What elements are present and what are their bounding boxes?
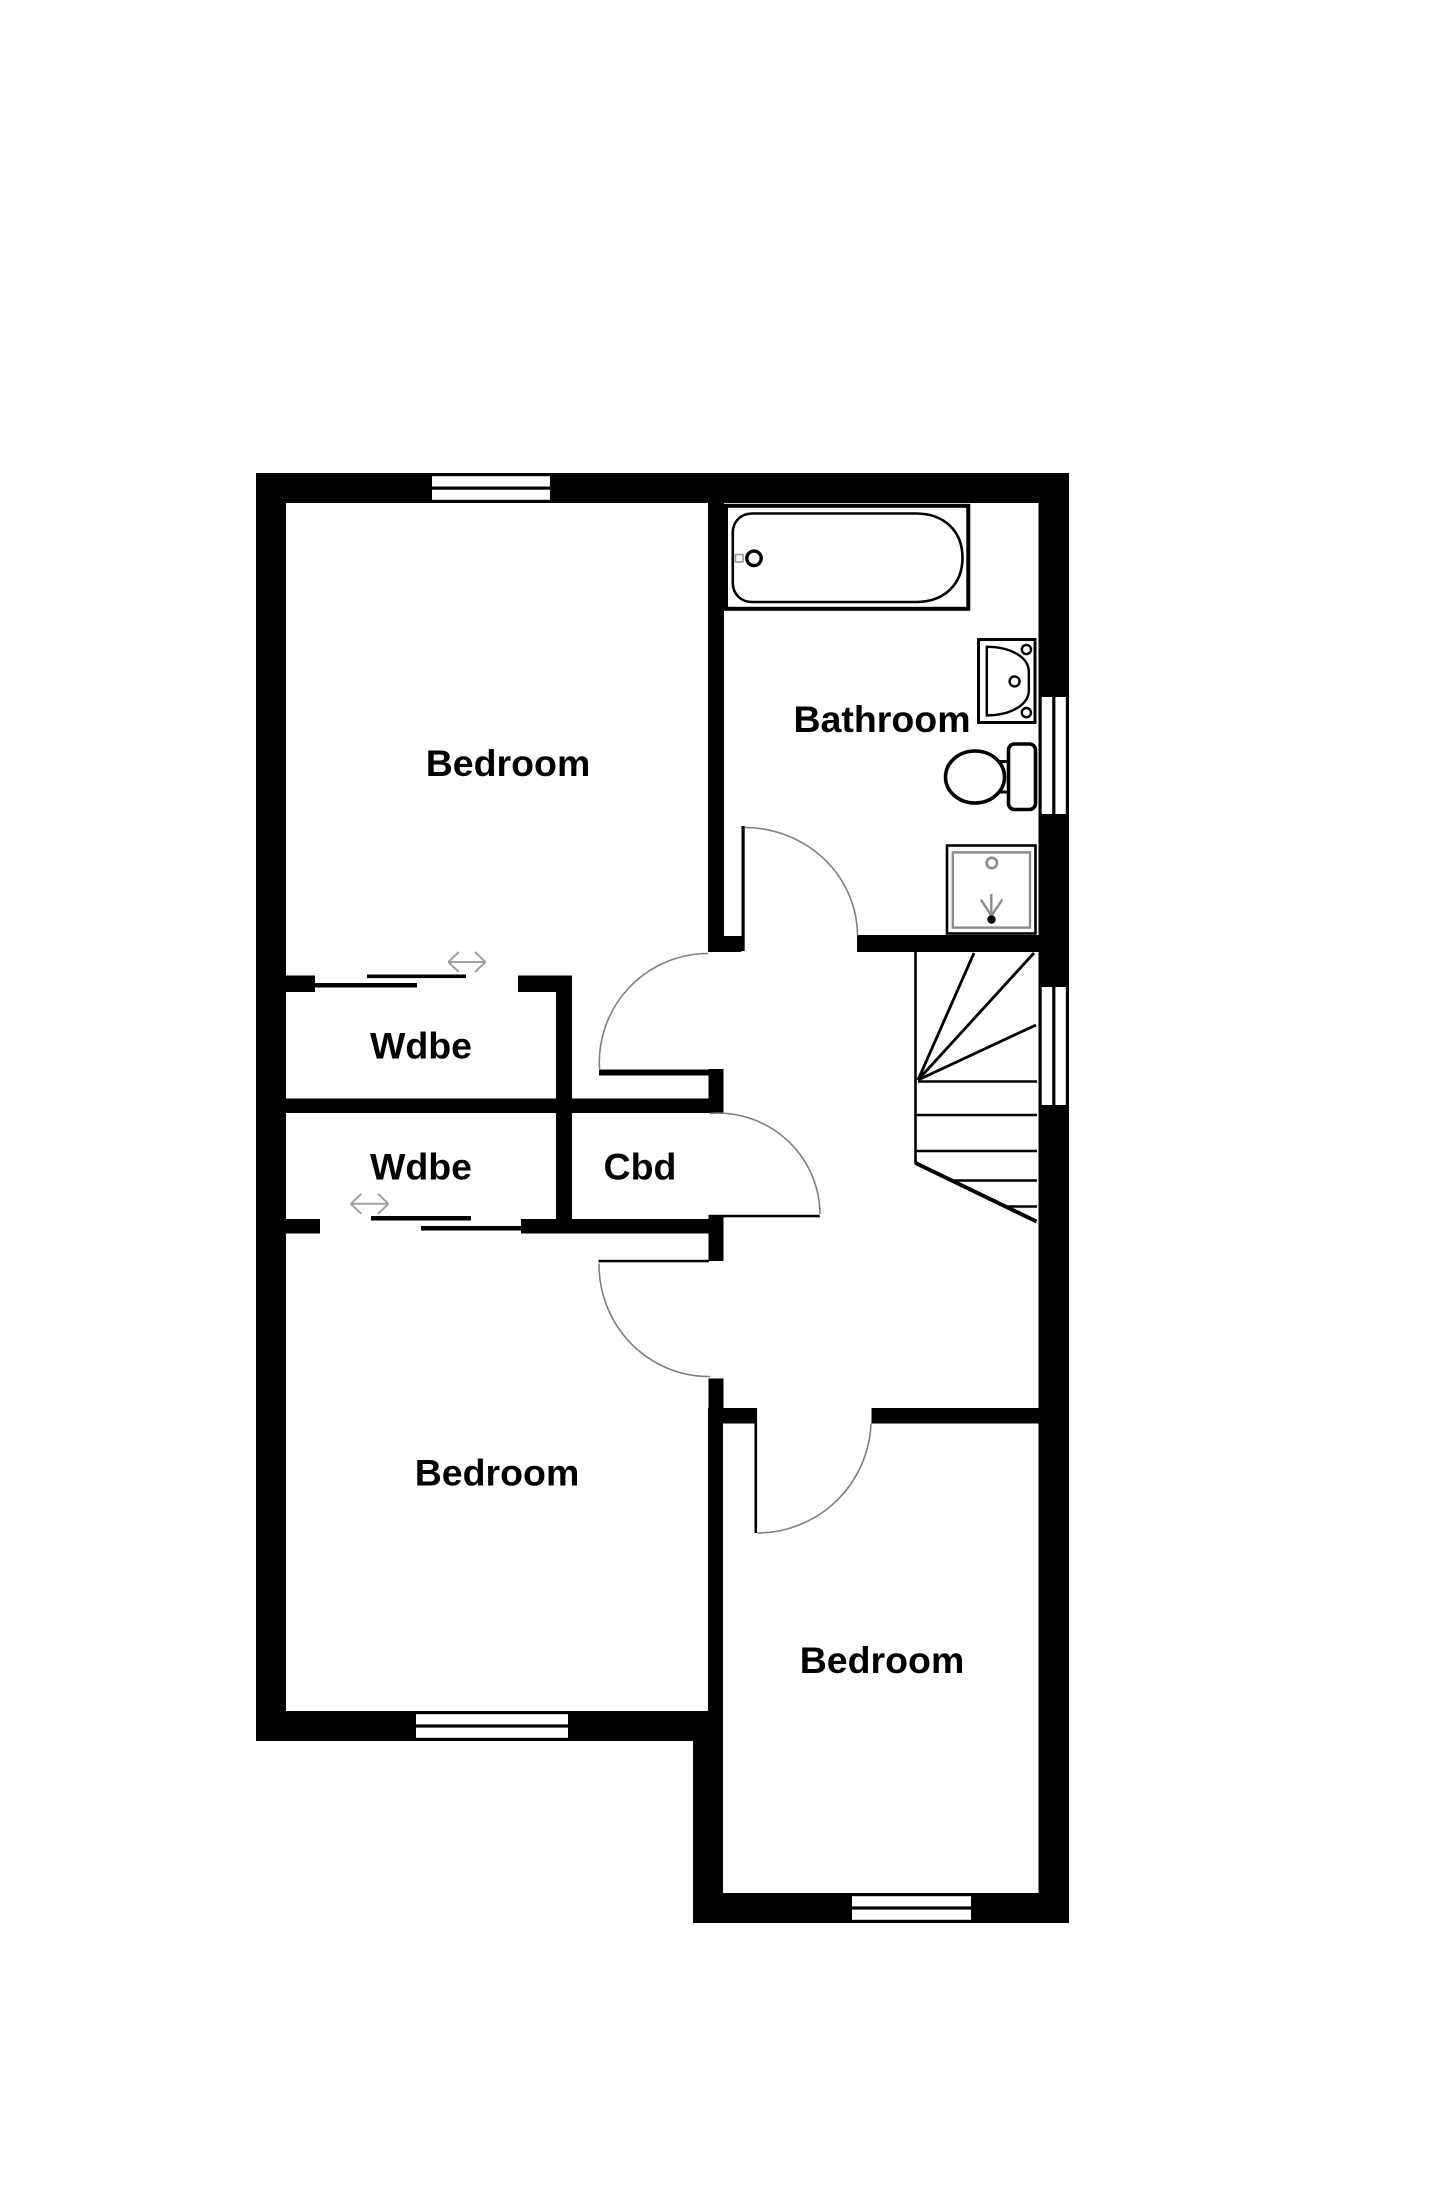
svg-text:Bedroom: Bedroom — [415, 1452, 580, 1494]
svg-text:Cbd: Cbd — [604, 1146, 677, 1188]
svg-text:Bedroom: Bedroom — [800, 1639, 965, 1681]
svg-text:Bathroom: Bathroom — [793, 698, 970, 740]
svg-text:Bedroom: Bedroom — [426, 742, 591, 784]
svg-text:Wdbe: Wdbe — [370, 1146, 472, 1188]
svg-text:Wdbe: Wdbe — [370, 1025, 472, 1067]
